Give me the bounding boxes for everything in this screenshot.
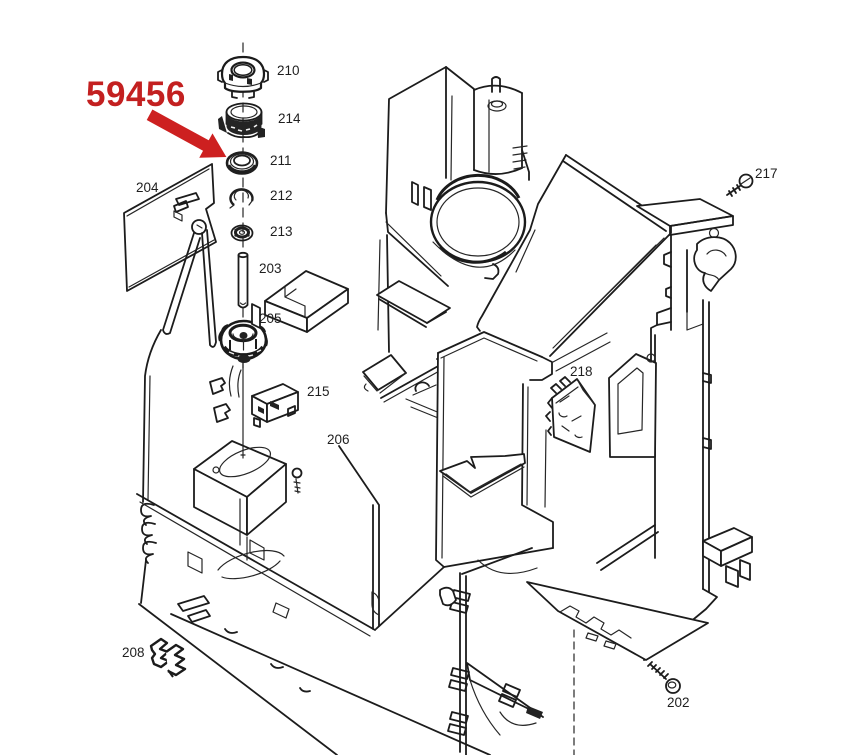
svg-text:206: 206 — [327, 432, 350, 447]
svg-text:208: 208 — [122, 645, 145, 660]
svg-text:211: 211 — [270, 153, 292, 168]
svg-text:214: 214 — [278, 111, 301, 126]
svg-text:210: 210 — [277, 63, 300, 78]
svg-text:205: 205 — [259, 311, 282, 326]
svg-text:204: 204 — [136, 180, 159, 195]
svg-text:212: 212 — [270, 188, 293, 203]
svg-text:218: 218 — [570, 364, 593, 379]
svg-text:213: 213 — [270, 224, 293, 239]
svg-text:202: 202 — [667, 695, 690, 710]
svg-text:203: 203 — [259, 261, 282, 276]
svg-text:215: 215 — [307, 384, 330, 399]
svg-text:59456: 59456 — [86, 75, 186, 114]
svg-text:217: 217 — [755, 166, 778, 181]
